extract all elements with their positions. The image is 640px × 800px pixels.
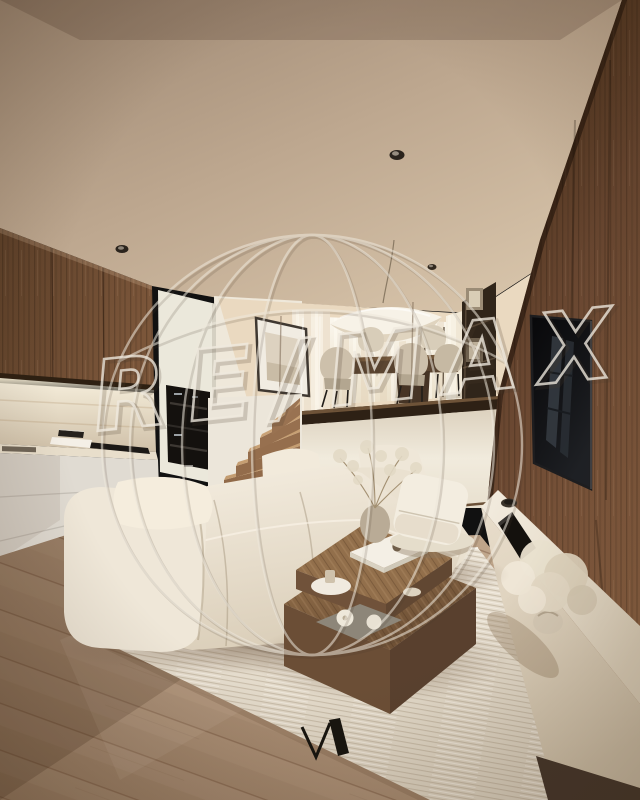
apartment-scene: RE/MAX RE/MAX [0, 0, 640, 800]
interior-render-photo: RE/MAX RE/MAX [0, 0, 640, 800]
